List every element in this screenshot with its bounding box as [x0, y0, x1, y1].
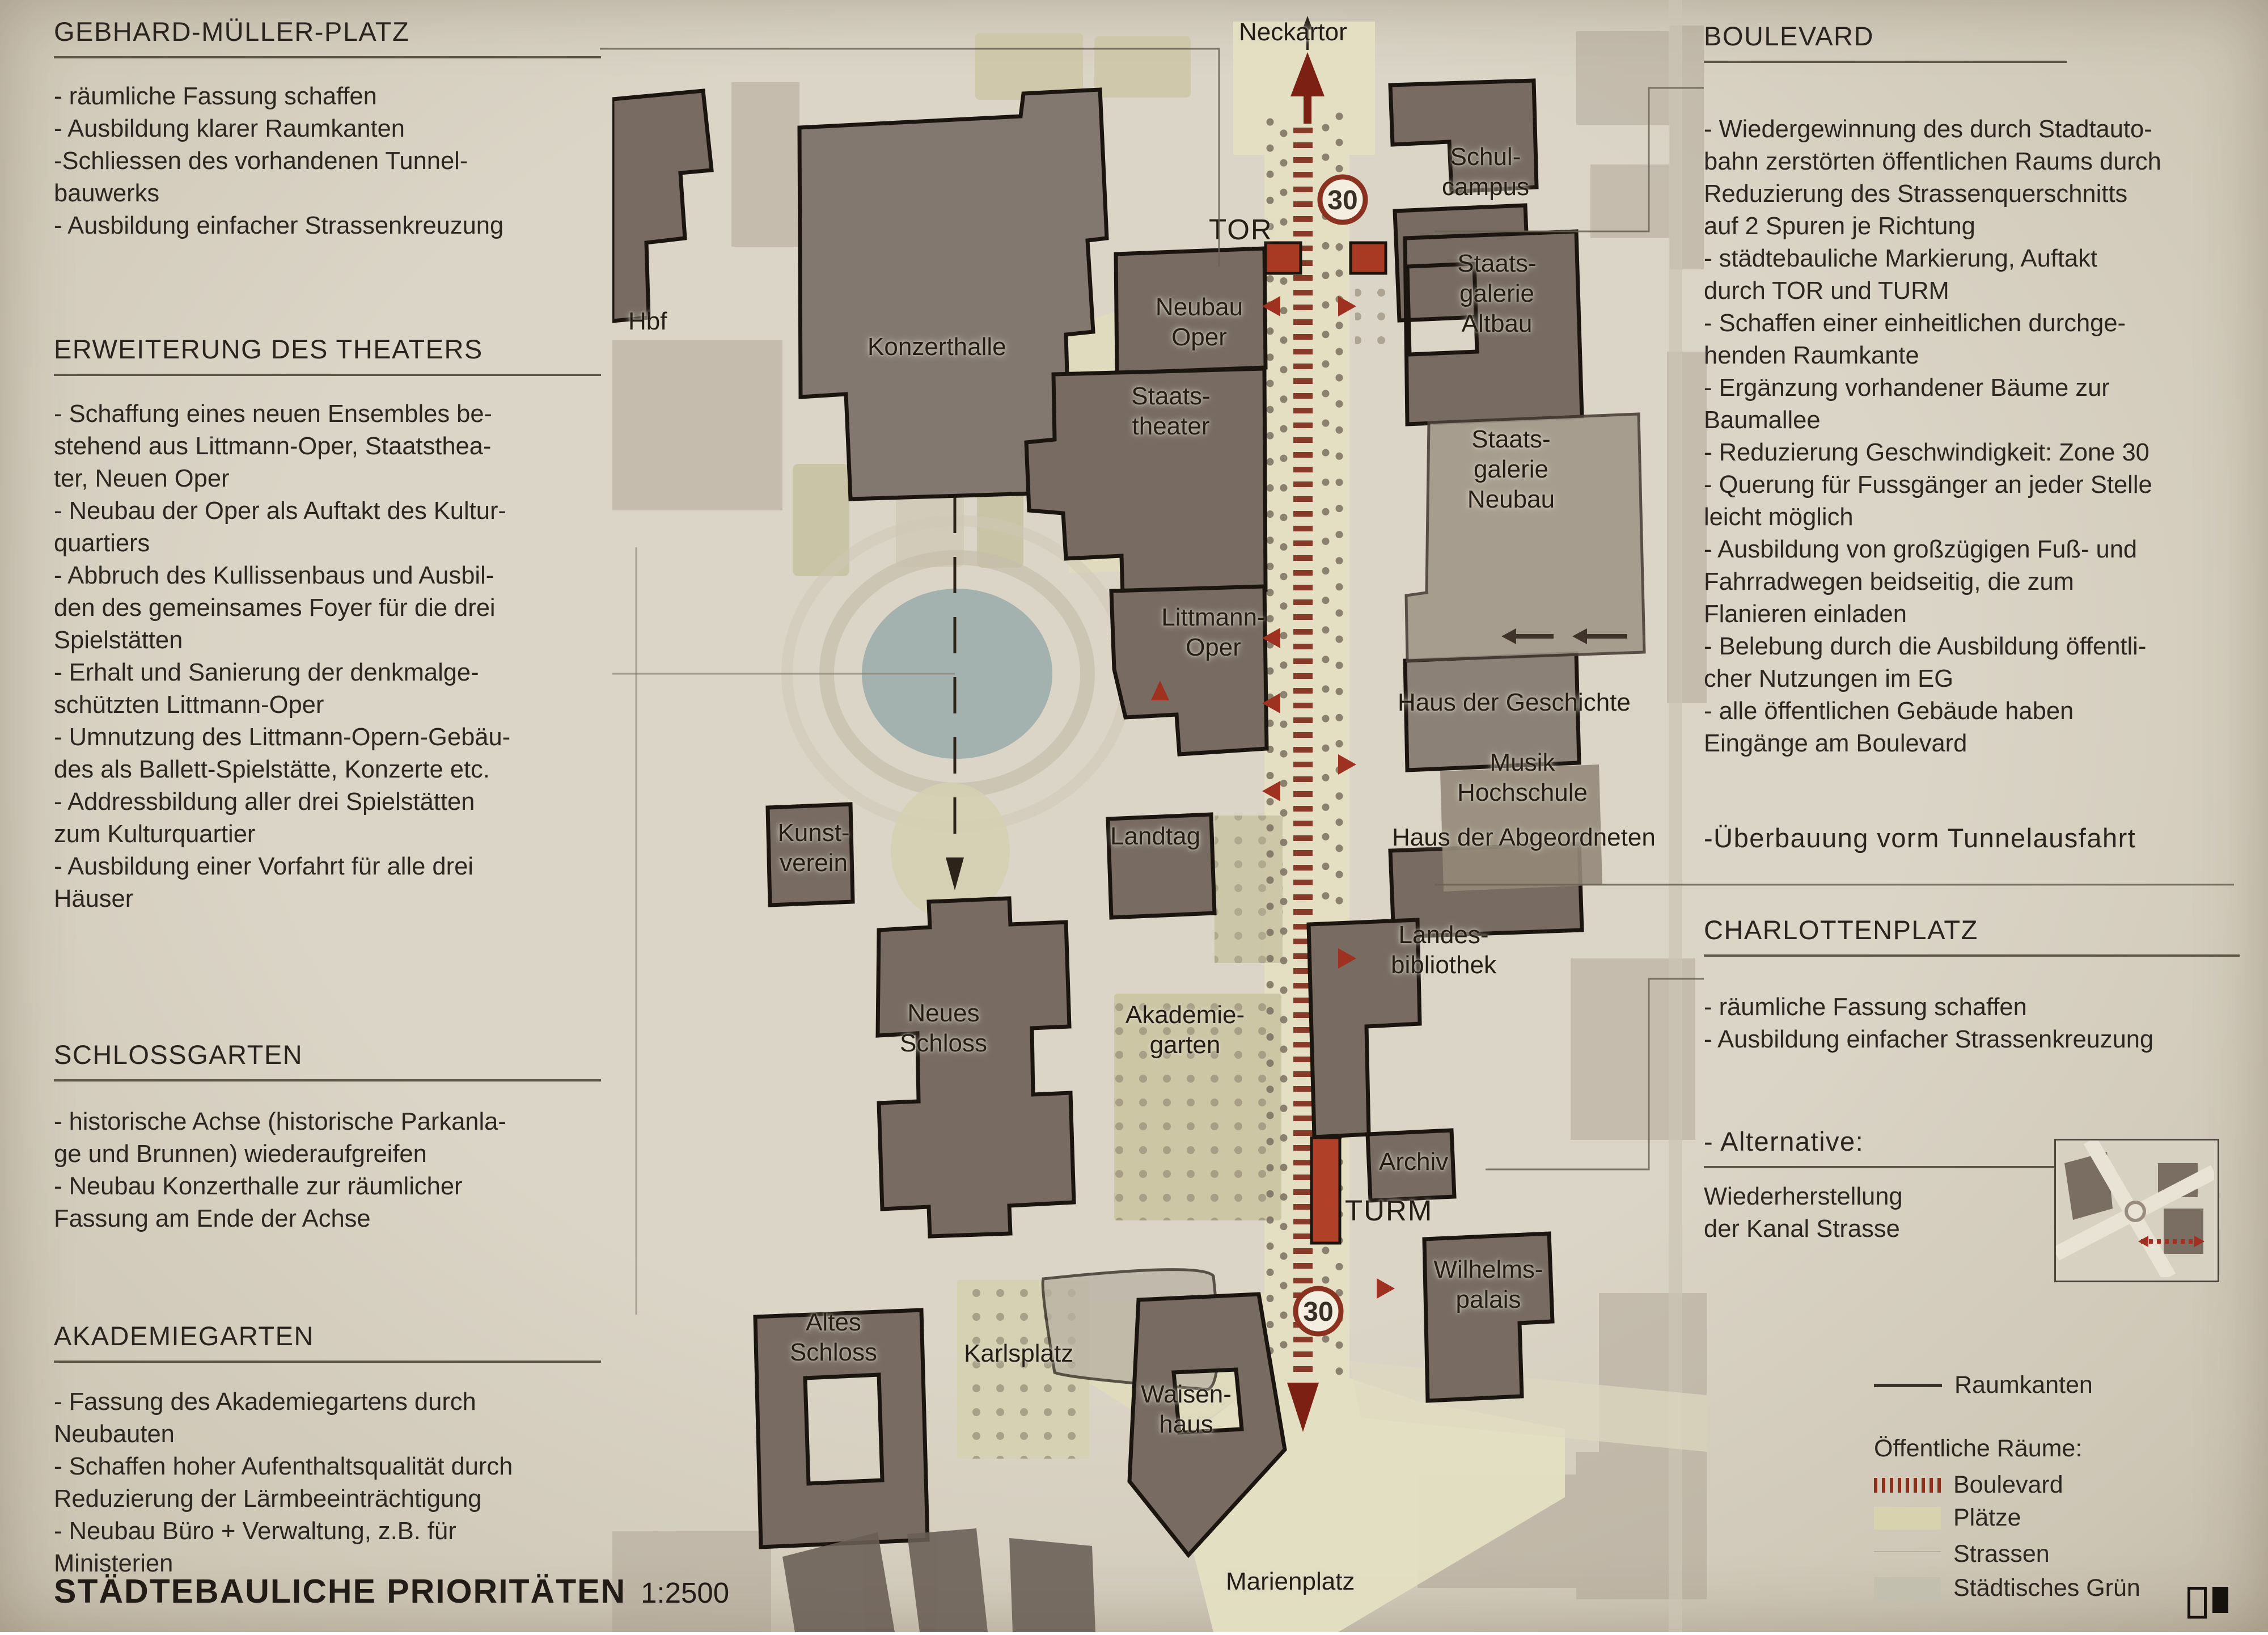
bullet-line: - Querung für Fussgänger an jeder Stelle: [1704, 469, 2265, 501]
map-label-waisenhaus: Waisen- haus: [1141, 1379, 1232, 1439]
map-label-akademiegarten: Akademie- garten: [1125, 1000, 1245, 1060]
map-label-marienplatz: Marienplatz: [1226, 1566, 1355, 1596]
section-erweiterung-theaters: ERWEITERUNG DES THEATERS: [54, 333, 601, 376]
page-marker-filled: [2212, 1587, 2228, 1613]
legend-label: Städtisches Grün: [1953, 1574, 2140, 1602]
bullet-line: zum Kulturquartier: [54, 818, 621, 851]
map-label-turm: TURM: [1345, 1195, 1433, 1226]
bullet-line: Fahrradwegen beidseitig, die zum: [1704, 566, 2265, 598]
bullet-line: bahn zerstörten öffentlichen Raums durch: [1704, 146, 2265, 178]
tor-gate-right: [1351, 243, 1386, 273]
section-heading: AKADEMIEGARTEN: [54, 1320, 601, 1363]
bullet-line: - Ausbildung einfacher Strassenkreuzung: [54, 210, 621, 242]
bullet-line: - Erhalt und Sanierung der denkmalge-: [54, 657, 621, 689]
bullet-line: henden Raumkante: [1704, 340, 2265, 372]
section-heading: SCHLOSSGARTEN: [54, 1039, 601, 1081]
bullet-line: - Schaffung eines neuen Ensembles be-: [54, 398, 621, 430]
map-label-altes-schloss: Altes Schloss: [790, 1307, 877, 1367]
map-label-sg-neubau: Staats- galerie Neubau: [1467, 424, 1555, 514]
section-heading: GEBHARD-MÜLLER-PLATZ: [54, 16, 601, 58]
building-hbf: [612, 91, 712, 321]
map-label-landtag: Landtag: [1110, 821, 1200, 851]
map-label-schulcampus: Schul- campus: [1442, 142, 1529, 202]
bullet-line: - Umnutzung des Littmann-Opern-Gebäu-: [54, 721, 621, 754]
sheet-title: STÄDTEBAULICHE PRIORITÄTEN1:2500: [54, 1572, 729, 1611]
bullet-line: - historische Achse (historische Parkanl…: [54, 1106, 621, 1138]
gruen-swatch: [1874, 1577, 1941, 1600]
map-label-neckartor: Neckartor: [1239, 17, 1347, 47]
legend-plaetze: Plätze: [1874, 1504, 2021, 1532]
bullet-line: - Schaffen hoher Aufenthaltsqualität dur…: [54, 1451, 621, 1483]
bullet-line: - Wiedergewinnung des durch Stadtauto-: [1704, 113, 2265, 146]
section-heading: ERWEITERUNG DES THEATERS: [54, 333, 601, 376]
legend-label: Plätze: [1953, 1504, 2021, 1532]
bullet-line: Flanieren einladen: [1704, 598, 2265, 631]
section-schlossgarten-lines: - historische Achse (historische Parkanl…: [54, 1106, 621, 1235]
map-label-hda: Haus der Abgeordneten: [1392, 822, 1656, 852]
bullet-line: - Neubau der Oper als Auftakt des Kultur…: [54, 495, 621, 527]
raumkanten-swatch: [1874, 1384, 1942, 1387]
bullet-line: - räumliche Fassung schaffen: [54, 81, 621, 113]
bullet-line: Eingänge am Boulevard: [1704, 728, 2265, 760]
bullet-line: Baumallee: [1704, 404, 2265, 437]
map-label-hbf: Hbf: [628, 306, 667, 336]
section-heading: BOULEVARD: [1704, 20, 2067, 63]
bullet-line: - Schaffen einer einheitlichen durchge-: [1704, 307, 2265, 340]
bullet-line: - räumliche Fassung schaffen: [1704, 991, 2265, 1024]
bullet-line: des als Ballett-Spielstätte, Konzerte et…: [54, 754, 621, 786]
section-charlottenplatz: CHARLOTTENPLATZ: [1704, 914, 2242, 957]
map-label-neubau-oper: Neubau Oper: [1156, 292, 1243, 352]
bullet-line: - Ausbildung von großzügigen Fuß- und: [1704, 534, 2265, 566]
bullet-line: - städtebauliche Markierung, Auftakt: [1704, 243, 2265, 275]
section-heading: CHARLOTTENPLATZ: [1704, 914, 2240, 957]
bullet-line: Spielstätten: [54, 624, 621, 657]
bullet-line: - Ausbildung einfacher Strassenkreuzung: [1704, 1024, 2265, 1056]
bullet-line: - Belebung durch die Ausbildung öffentli…: [1704, 631, 2265, 663]
map-label-musik: Musik Hochschule: [1457, 747, 1588, 808]
page-marker-icon: [2187, 1587, 2228, 1619]
section-alternative-lines: Wiederherstellung der Kanal Strasse: [1704, 1181, 2055, 1245]
section-heading: - Alternative:: [1704, 1126, 2064, 1168]
map-label-staatstheater: Staats- theater: [1131, 381, 1210, 441]
bullet-line: ter, Neuen Oper: [54, 463, 621, 495]
map-label-sg-altbau: Staats- galerie Altbau: [1457, 248, 1536, 339]
turm-marker: [1311, 1138, 1340, 1243]
legend-label: Boulevard: [1953, 1471, 2063, 1499]
kanalstrasse-inset-map: [2054, 1139, 2219, 1282]
map-label-karlsplatz: Karlsplatz: [964, 1338, 1073, 1368]
section-gebhard-mueller-platz: GEBHARD-MÜLLER-PLATZ: [54, 16, 601, 58]
city-plan-map: 30 30 Hbf Konzerthalle Neckartor Schul- …: [612, 0, 1707, 1632]
bullet-line: auf 2 Spuren je Richtung: [1704, 210, 2265, 243]
strassen-swatch: [1874, 1551, 1941, 1558]
bullet-line: ge und Brunnen) wiederaufgreifen: [54, 1138, 621, 1171]
tor-gate-left: [1266, 243, 1301, 273]
section-gmp-lines: - räumliche Fassung schaffen - Ausbildun…: [54, 81, 621, 242]
legend-label: Raumkanten: [1954, 1371, 2093, 1399]
plaetze-swatch: [1874, 1507, 1941, 1530]
map-label-landesbib: Landes- bibliothek: [1391, 920, 1496, 980]
page-marker-outline: [2187, 1587, 2207, 1619]
bullet-line: - Reduzierung Geschwindigkeit: Zone 30: [1704, 437, 2265, 469]
bullet-line: Reduzierung des Strassenquerschnitts: [1704, 178, 2265, 210]
bullet-line: stehend aus Littmann-Oper, Staatsthea-: [54, 430, 621, 463]
section-boulevard: BOULEVARD: [1704, 20, 2067, 63]
section-akademiegarten: AKADEMIEGARTEN: [54, 1320, 601, 1363]
map-label-neues-schloss: Neues Schloss: [900, 998, 987, 1058]
bullet-line: - Fassung des Akademiegartens durch: [54, 1386, 621, 1418]
map-label-hdg: Haus der Geschichte: [1398, 687, 1631, 717]
inset-sketch: [2056, 1140, 2214, 1277]
section-alternative: - Alternative:: [1704, 1126, 2064, 1168]
section-heading: -Überbauung vorm Tunnelausfahrt: [1704, 822, 2242, 863]
bullet-line: Reduzierung der Lärmbeeinträchtigung: [54, 1483, 621, 1515]
map-label-wilhelms: Wilhelms- palais: [1433, 1254, 1543, 1315]
legend-gruen: Städtisches Grün: [1874, 1574, 2140, 1602]
section-boulevard-lines: - Wiedergewinnung des durch Stadtauto- b…: [1704, 113, 2265, 760]
bullet-line: schützten Littmann-Oper: [54, 689, 621, 721]
bullet-line: den des gemeinsames Foyer für die drei: [54, 592, 621, 624]
map-label-kunstverein: Kunst- verein: [777, 818, 849, 878]
legend-heading: Öffentliche Räume:: [1874, 1435, 2082, 1463]
legend-strassen: Strassen: [1874, 1540, 2050, 1568]
bullet-line: - Ausbildung einer Vorfahrt für alle dre…: [54, 851, 621, 883]
bullet-line: Fassung am Ende der Achse: [54, 1203, 621, 1235]
map-label-konzerthalle: Konzerthalle: [868, 332, 1006, 362]
bullet-line: - alle öffentlichen Gebäude haben: [1704, 695, 2265, 728]
section-charlottenplatz-lines: - räumliche Fassung schaffen - Ausbildun…: [1704, 991, 2265, 1056]
bullet-line: Wiederherstellung: [1704, 1181, 2055, 1213]
bullet-line: - Ergänzung vorhandener Bäume zur: [1704, 372, 2265, 404]
legend-boulevard: Boulevard: [1874, 1471, 2063, 1499]
sheet-title-text: STÄDTEBAULICHE PRIORITÄTEN: [54, 1573, 626, 1610]
bullet-line: - Addressbildung aller drei Spielstätten: [54, 786, 621, 818]
bullet-line: - Neubau Büro + Verwaltung, z.B. für: [54, 1515, 621, 1548]
bullet-line: durch TOR und TURM: [1704, 275, 2265, 307]
bullet-line: quartiers: [54, 527, 621, 560]
map-label-tor: TOR: [1209, 214, 1273, 244]
bullet-line: - Abbruch des Kullissenbaus und Ausbil-: [54, 560, 621, 592]
legend-raumkanten: Raumkanten: [1874, 1371, 2093, 1399]
bullet-line: leicht möglich: [1704, 501, 2265, 534]
bullet-line: bauwerks: [54, 178, 621, 210]
section-erw-lines: - Schaffung eines neuen Ensembles be- st…: [54, 398, 621, 915]
map-label-archiv: Archiv: [1379, 1147, 1448, 1177]
section-schlossgarten: SCHLOSSGARTEN: [54, 1039, 601, 1081]
boulevard-swatch: [1874, 1478, 1941, 1493]
bullet-line: - Ausbildung klarer Raumkanten: [54, 113, 621, 145]
sheet-scale: 1:2500: [641, 1577, 729, 1609]
building-neues-schloss: [878, 898, 1074, 1236]
legend-label: Strassen: [1953, 1540, 2050, 1568]
bullet-line: der Kanal Strasse: [1704, 1213, 2055, 1245]
map-label-littmann: Littmann- Oper: [1161, 602, 1265, 662]
bullet-line: - Neubau Konzerthalle zur räumlicher: [54, 1171, 621, 1203]
section-ueberbauung: -Überbauung vorm Tunnelausfahrt: [1704, 822, 2242, 863]
zone30-top: 30: [1327, 185, 1357, 216]
bullet-line: -Schliessen des vorhandenen Tunnel-: [54, 145, 621, 178]
bullet-line: Häuser: [54, 883, 621, 915]
bullet-line: cher Nutzungen im EG: [1704, 663, 2265, 695]
zone30-bottom: 30: [1303, 1297, 1333, 1327]
plan-sheet: 30 30 Hbf Konzerthalle Neckartor Schul- …: [0, 0, 2268, 1632]
section-akademiegarten-lines: - Fassung des Akademiegartens durch Neub…: [54, 1386, 621, 1580]
bullet-line: Neubauten: [54, 1418, 621, 1451]
